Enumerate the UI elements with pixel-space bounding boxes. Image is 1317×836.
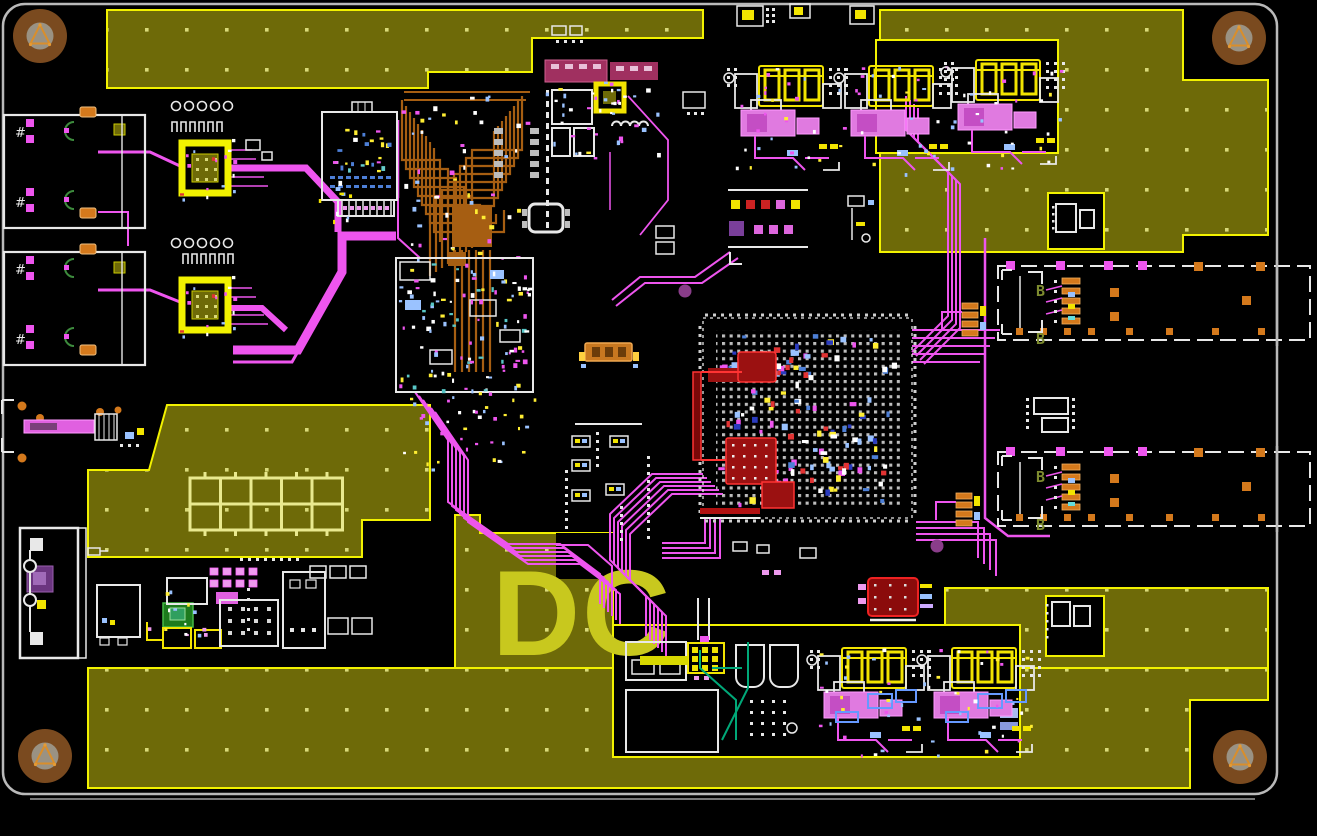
edgeconn1-label-b: B [1036, 330, 1045, 348]
main-bga-body[interactable] [699, 314, 917, 523]
mounting-hole-bottom-left[interactable] [18, 729, 72, 783]
edgeconn2-label-a: B [1036, 468, 1045, 486]
mounting-hole-top-right[interactable] [1212, 11, 1266, 65]
edgeconn2-label-b: B [1036, 516, 1045, 534]
mounting-hole-bottom-right[interactable] [1213, 730, 1267, 784]
jack2-marker-b: # [15, 333, 26, 348]
edgeconn1-label-a: B [1036, 282, 1045, 300]
pcb-canvas: DC # # # # B B B B [0, 0, 1317, 836]
pcb-layout-view: DC # # # # B B B B [0, 0, 1317, 836]
jack1-marker-a: # [15, 126, 26, 141]
jack2-marker-a: # [15, 263, 26, 278]
mounting-hole-top-left[interactable] [13, 9, 67, 63]
dc-input-connector[interactable] [20, 528, 86, 658]
jack1-marker-b: # [15, 196, 26, 211]
main-bga-ic[interactable] [693, 314, 917, 523]
